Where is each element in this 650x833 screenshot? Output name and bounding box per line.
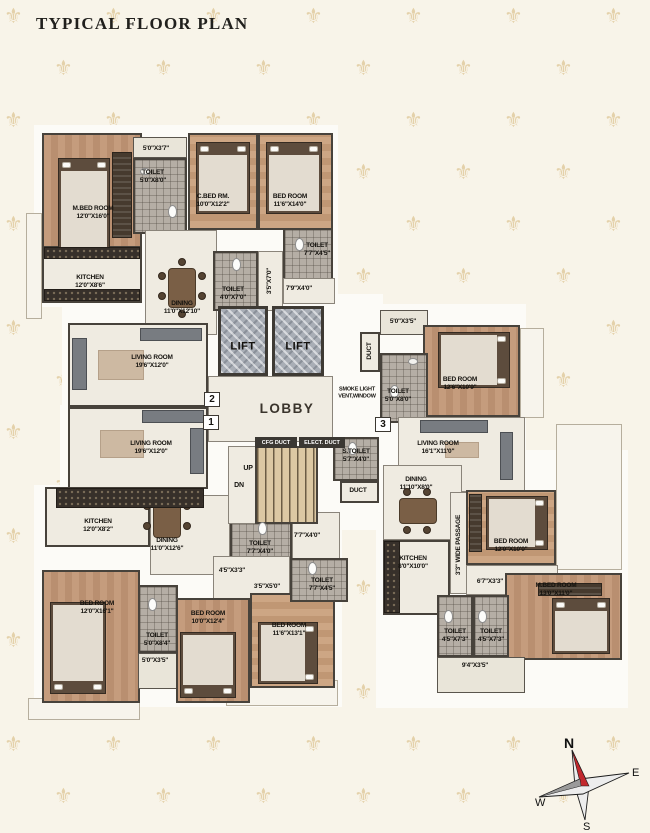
label-u2-toilet-3: TOILET4'0"X7'0" — [220, 286, 246, 302]
label-u3-bedroom-1: BED ROOM12'6"X10'9" — [443, 376, 477, 392]
wc-icon — [258, 522, 267, 535]
label-u3-passage-2: 6'7"X3'3" — [477, 578, 503, 586]
kitchen-counter — [384, 541, 400, 613]
room-u3-toilet-3 — [473, 595, 509, 657]
sofa-icon — [72, 338, 87, 390]
wc-icon — [478, 610, 487, 623]
label-u2-dining: DINING11'0"X12'10" — [164, 300, 200, 316]
label-smoke-vent: SMOKE LIGHTVENT,WINDOW — [338, 386, 376, 399]
label-stairs-up: UP — [243, 465, 252, 473]
label-u2-master-bedroom: M.BED ROOM12'0"X16'0" — [73, 205, 114, 221]
ledge — [556, 424, 622, 570]
unit-badge-3: 3 — [375, 417, 391, 432]
ledge — [520, 328, 544, 418]
dining-table-icon — [399, 498, 437, 524]
label-u2-balcony: 5'0"X3'7" — [143, 145, 169, 153]
label-servant-toilet: S.TOILET5'7"X4'0" — [342, 448, 370, 464]
label-u2-child-bedroom: C.BED RM.10'0"X12'2" — [196, 193, 229, 209]
label-stairs-dn: DN — [234, 482, 244, 490]
label-u2-toilet-1: TOILET5'0"X8'0" — [140, 169, 166, 185]
label-u2-kitchen: KITCHEN12'0"X8'6" — [75, 274, 105, 290]
cfg-duct-band: CFG DUCT — [255, 437, 297, 448]
label-u1-passage-1: 7'7"X4'0" — [294, 532, 320, 540]
label-u1-balcony: 5'0"X3'5" — [142, 657, 168, 665]
unit-badge-2: 2 — [204, 392, 220, 407]
label-u2-passage-2: 3'5"X7'0" — [266, 268, 274, 294]
bed-icon — [552, 598, 610, 654]
kitchen-counter — [56, 488, 204, 508]
label-lift-1: LIFT — [230, 340, 255, 353]
compass-e: E — [632, 767, 639, 779]
label-u1-dining: DINING11'0"X12'6" — [151, 537, 184, 553]
floor-plan-page: ⚜⚜⚜⚜⚜⚜⚜⚜⚜⚜⚜⚜⚜⚜⚜⚜⚜⚜⚜⚜⚜⚜⚜⚜⚜⚜⚜⚜⚜⚜⚜⚜⚜⚜⚜⚜⚜⚜⚜⚜… — [0, 0, 650, 833]
label-u3-living: LIVING ROOM16'1"X11'0" — [417, 440, 459, 456]
basin-icon — [408, 358, 418, 365]
label-duct-room: DUCT — [349, 487, 366, 495]
kitchen-counter — [44, 247, 140, 259]
wardrobe-icon — [469, 494, 482, 552]
label-u1-kitchen: KITCHEN12'0"X8'2" — [83, 518, 113, 534]
label-u3-balcony-1: 5'0"X3'5" — [390, 318, 416, 326]
label-u3-passage: 3'3" WIDE PASSAGE — [455, 515, 463, 575]
page-title: TYPICAL FLOOR PLAN — [36, 14, 248, 34]
wc-icon — [308, 562, 317, 575]
room-u3-toilet-2 — [437, 595, 473, 657]
kitchen-counter — [44, 289, 140, 301]
staircase — [255, 446, 318, 524]
label-u3-toilet-1: TOILET5'0"X8'0" — [385, 388, 411, 404]
label-u1-toilet-1: TOILET7'7"X4'0" — [247, 540, 273, 556]
wc-icon — [168, 205, 177, 218]
label-u1-passage-2: 4'5"X3'3" — [219, 567, 245, 575]
label-u3-toilet-2: TOILET4'5"X7'3" — [442, 628, 468, 644]
label-duct-shaft: DUCT — [366, 342, 374, 359]
label-u1-living: LIVING ROOM19'6"X12'0" — [130, 440, 172, 456]
label-u3-kitchen: KITCHEN8'0"X10'0" — [398, 555, 428, 571]
label-u1-bedroom-1: BED ROOM12'0"X16'1" — [80, 600, 114, 616]
ledge — [26, 213, 42, 319]
compass-n: N — [564, 736, 574, 751]
label-u2-toilet-2: TOILET7'7"X4'5" — [304, 242, 330, 258]
label-u1-toilet-3: TOILET7'7"X4'5" — [309, 577, 335, 593]
wc-icon — [232, 258, 241, 271]
sofa-icon — [500, 432, 513, 480]
label-u1-bedroom-2: BED ROOM10'0"X12'4" — [191, 610, 225, 626]
unit-badge-1: 1 — [203, 415, 219, 430]
wc-icon — [444, 610, 453, 623]
wc-icon — [148, 598, 157, 611]
wardrobe-icon — [112, 152, 132, 238]
label-u3-balcony-2: 9'4"X3'5" — [462, 662, 488, 670]
label-u1-bedroom-3: BED ROOM11'6"X13'1" — [272, 622, 306, 638]
label-lobby: LOBBY — [260, 401, 315, 417]
label-u3-bedroom-2: BED ROOM12'0"X10'0" — [494, 538, 528, 554]
label-u1-passage-3: 3'5"X5'0" — [254, 583, 280, 591]
wc-icon — [295, 238, 304, 251]
compass-w: W — [535, 797, 546, 809]
bed-icon — [50, 602, 106, 694]
compass-s: S — [583, 821, 590, 831]
sofa-icon — [420, 420, 488, 433]
label-u2-living: LIVING ROOM19'6"X12'0" — [131, 354, 173, 370]
label-u1-toilet-2: TOILET5'0"X8'4" — [144, 632, 170, 648]
sofa-icon — [142, 410, 204, 423]
sofa-icon — [140, 328, 202, 341]
label-u3-dining: DINING11'10"X8'0" — [400, 476, 433, 492]
compass-rose: N E W S — [535, 736, 640, 831]
label-u2-bedroom-2: BED ROOM11'6"X14'0" — [273, 193, 307, 209]
bed-icon — [58, 158, 110, 250]
label-u2-passage-1: 7'9"X4'0" — [286, 285, 312, 293]
bed-icon — [180, 632, 236, 698]
label-lift-2: LIFT — [285, 340, 310, 353]
elect-duct-band: ELECT. DUCT — [299, 437, 345, 448]
label-u3-master-bedroom: M.BED ROOM13'0"X11'0" — [536, 582, 577, 598]
label-u3-toilet-3: TOILET4'5"X7'3" — [478, 628, 504, 644]
sofa-icon — [190, 428, 204, 474]
